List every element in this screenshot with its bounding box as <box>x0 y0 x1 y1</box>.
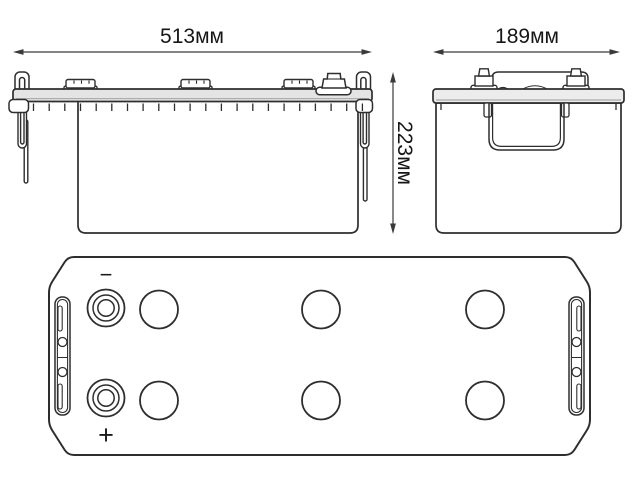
height-dimension-label: 223мм <box>393 113 415 193</box>
front-terminal-post <box>316 74 351 95</box>
side-lid <box>433 89 624 103</box>
depth-dimension-label: 189мм <box>467 26 587 48</box>
top-right-handle <box>569 297 584 415</box>
front-view <box>9 72 373 233</box>
front-left-strap <box>18 103 28 183</box>
front-body <box>78 101 358 233</box>
top-view <box>49 257 590 455</box>
top-outline <box>49 257 590 455</box>
side-handle-clip-left <box>484 103 492 117</box>
top-left-handle <box>55 297 70 415</box>
negative-terminal-label: − <box>96 265 116 285</box>
positive-terminal-label: + <box>96 423 116 447</box>
front-vent-caps <box>64 80 315 90</box>
depth-dimension-line <box>433 49 620 55</box>
battery-dimension-diagram: 513мм 189мм 223мм − + <box>0 0 640 480</box>
side-body <box>436 103 621 233</box>
side-terminal-left <box>471 69 497 91</box>
width-dimension-line <box>13 49 372 55</box>
width-dimension-label: 513мм <box>132 26 252 48</box>
side-view <box>433 69 624 233</box>
front-right-strap <box>361 103 370 201</box>
diagram-linework <box>0 0 640 480</box>
side-handle-clip-right <box>562 103 570 117</box>
front-right-bracket <box>356 100 373 113</box>
front-left-bracket <box>9 100 29 113</box>
